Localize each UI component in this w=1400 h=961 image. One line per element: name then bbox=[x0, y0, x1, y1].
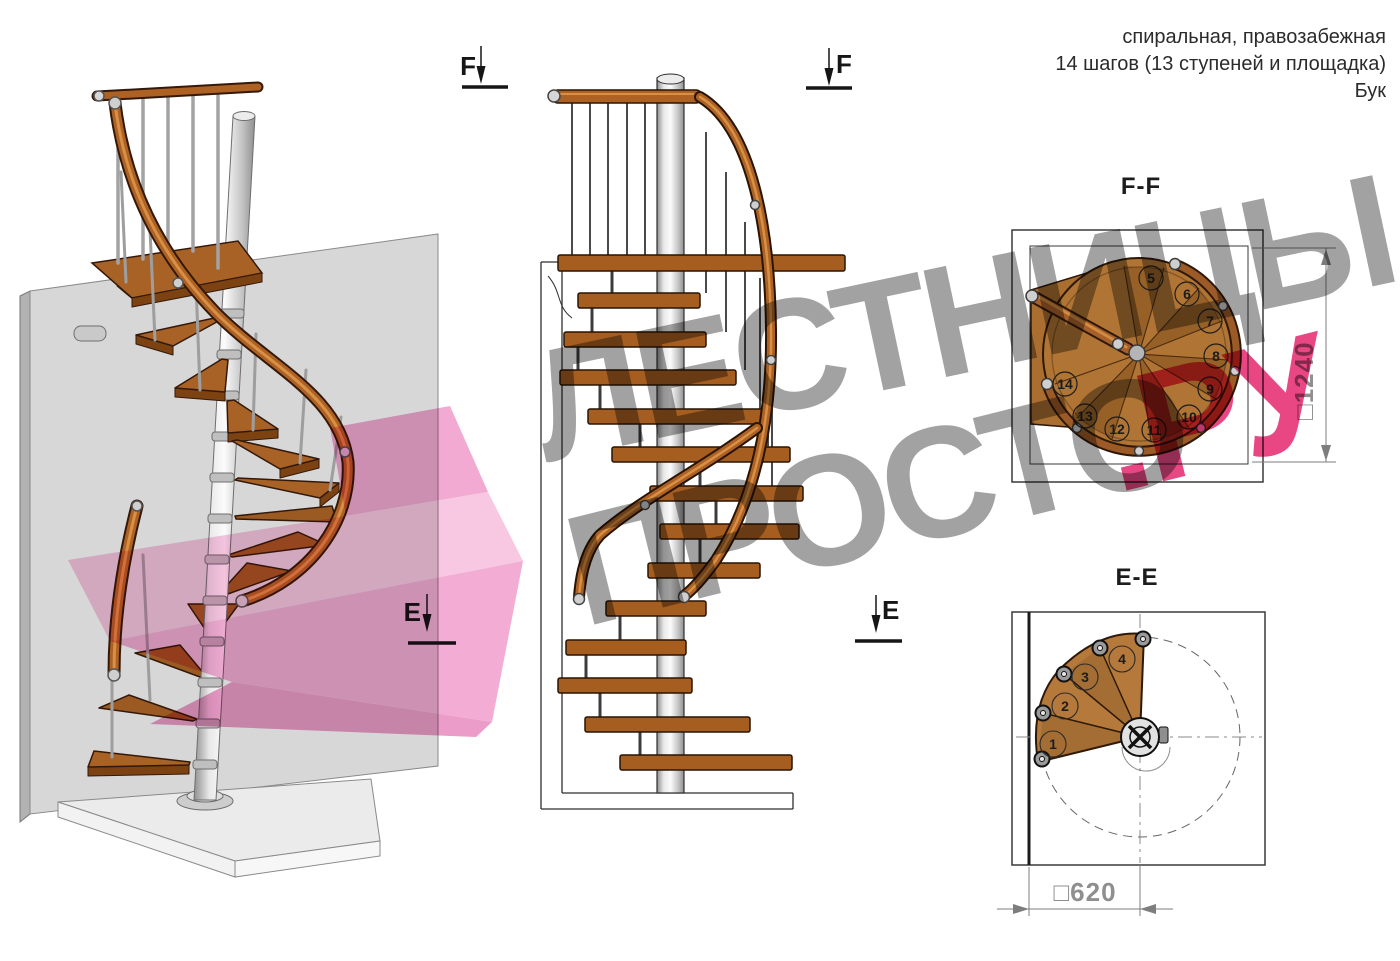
marker-f-left-label: F bbox=[460, 51, 476, 81]
dim-arrow-icon bbox=[1321, 249, 1331, 265]
step-number: 13 bbox=[1077, 408, 1093, 424]
ee-pole-hub bbox=[1121, 718, 1170, 771]
marker-e-left-label: E bbox=[404, 597, 421, 627]
section-view-ff: F-F bbox=[1012, 173, 1336, 482]
ff-dim-label: □1240 bbox=[1289, 341, 1319, 420]
dim-arrow-icon bbox=[1321, 445, 1331, 461]
dim-arrow-icon bbox=[1140, 904, 1156, 914]
step-number: 7 bbox=[1206, 313, 1214, 329]
step-number: 12 bbox=[1109, 421, 1125, 437]
ee-title: E-E bbox=[1115, 564, 1158, 591]
dim-arrow-icon bbox=[1013, 904, 1029, 914]
drawing-canvas: F F E E F-F bbox=[0, 0, 1400, 961]
step-number: 4 bbox=[1118, 651, 1126, 667]
step-number: 3 bbox=[1081, 669, 1089, 685]
ff-title: F-F bbox=[1121, 173, 1161, 200]
ee-dimension: □620 bbox=[997, 865, 1173, 916]
step-number: 8 bbox=[1212, 348, 1220, 364]
step-number: 14 bbox=[1057, 376, 1073, 392]
step-number: 9 bbox=[1206, 381, 1214, 397]
step-number: 2 bbox=[1061, 698, 1069, 714]
section-arrow-icon bbox=[872, 615, 881, 633]
step-number: 6 bbox=[1183, 286, 1191, 302]
ff-dimension: □1240 bbox=[1252, 248, 1336, 462]
step-number: 11 bbox=[1147, 422, 1162, 438]
ee-dim-label: □620 bbox=[1053, 877, 1116, 907]
section-marker-f-left: F bbox=[460, 46, 508, 87]
staircase-drawing-scene: F F E E F-F bbox=[0, 0, 1400, 961]
product-annotation: спиральная, правозабежная 14 шагов (13 с… bbox=[1055, 24, 1386, 105]
step-number: 5 bbox=[1147, 270, 1155, 286]
annotation-material: Бук bbox=[1055, 78, 1386, 105]
section-marker-f-right: F bbox=[806, 48, 852, 88]
section-arrow-icon bbox=[477, 66, 486, 84]
step-number: 1 bbox=[1049, 736, 1057, 752]
staircase-elevation-view bbox=[541, 74, 845, 809]
marker-e-right-label: E bbox=[882, 595, 899, 625]
top-rail-elevation bbox=[548, 90, 702, 103]
section-view-ee: E-E bbox=[997, 564, 1265, 916]
annotation-steps: 14 шагов (13 ступеней и площадка) bbox=[1055, 51, 1386, 78]
annotation-type: спиральная, правозабежная bbox=[1055, 24, 1386, 51]
staircase-3d-view bbox=[20, 87, 438, 877]
marker-f-right-label: F bbox=[836, 49, 852, 79]
section-arrow-icon bbox=[825, 68, 834, 86]
steps-elevation bbox=[558, 255, 845, 770]
section-marker-e-right: E bbox=[855, 595, 902, 641]
ff-pole-cap bbox=[1129, 345, 1145, 361]
step-number: 10 bbox=[1181, 409, 1197, 425]
